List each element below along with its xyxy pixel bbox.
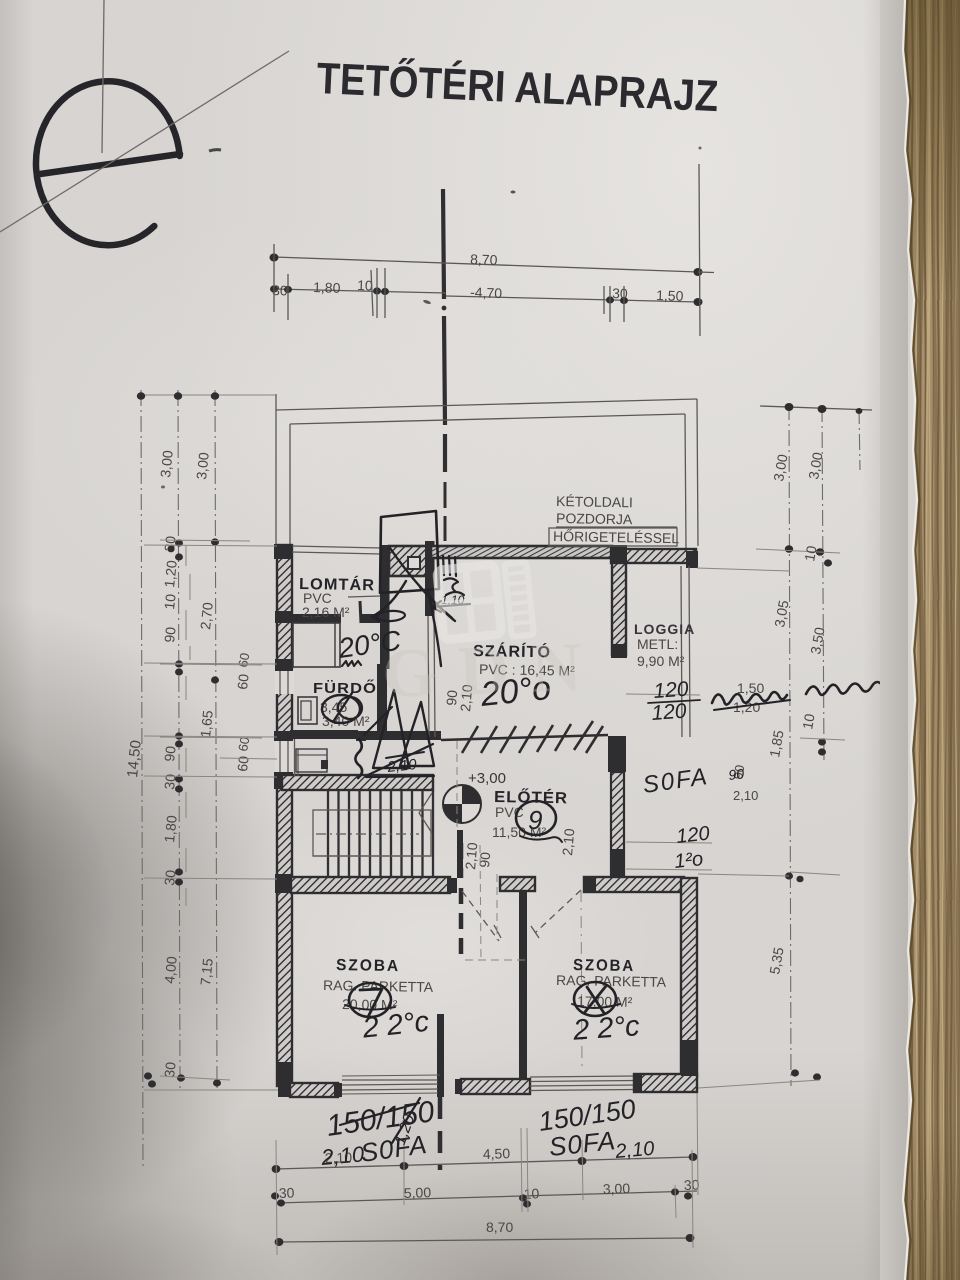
svg-text:1,65: 1,65 (197, 709, 216, 738)
svg-text:+3,00: +3,00 (468, 770, 506, 787)
svg-text:9,90 M²: 9,90 M² (637, 653, 685, 669)
svg-text:8,70: 8,70 (486, 1219, 513, 1235)
svg-text:7,15: 7,15 (197, 957, 216, 986)
svg-text:1,20: 1,20 (161, 559, 180, 588)
svg-text:8,70: 8,70 (470, 251, 498, 268)
svg-text:4,00: 4,00 (161, 955, 180, 984)
svg-text:3,00: 3,00 (603, 1180, 631, 1197)
svg-text:120: 120 (675, 823, 710, 848)
svg-text:GDN: GDN (381, 628, 605, 713)
svg-text:10: 10 (523, 1185, 540, 1202)
svg-text:2,70: 2,70 (197, 601, 216, 630)
svg-text:60: 60 (235, 652, 252, 669)
svg-text:30: 30 (612, 285, 628, 302)
svg-text:1,80: 1,80 (161, 814, 180, 843)
svg-text:9: 9 (528, 805, 542, 835)
svg-text:HŐRIGETELÉSSEL: HŐRIGETELÉSSEL (553, 528, 680, 546)
svg-text:3,00: 3,00 (193, 451, 212, 480)
svg-text:90: 90 (728, 765, 745, 783)
svg-text:1,80: 1,80 (313, 279, 341, 296)
svg-text:90: 90 (161, 745, 179, 762)
svg-text:10: 10 (799, 712, 817, 730)
svg-text:RAG. PARKETTA: RAG. PARKETTA (323, 977, 434, 995)
svg-text:4,50: 4,50 (483, 1145, 511, 1162)
svg-text:10: 10 (801, 544, 819, 562)
svg-text:METL:: METL: (637, 636, 678, 652)
svg-text:2,10: 2,10 (614, 1138, 656, 1163)
svg-text:1,50: 1,50 (737, 680, 764, 696)
svg-text:-4,70: -4,70 (470, 284, 503, 301)
svg-text:60: 60 (234, 755, 252, 772)
svg-text:SZOBA: SZOBA (336, 957, 400, 975)
svg-text:30: 30 (161, 1061, 179, 1078)
svg-text:60: 60 (234, 673, 252, 690)
svg-text:1,50: 1,50 (656, 287, 684, 304)
svg-text:2,16 M²: 2,16 M² (302, 604, 350, 620)
svg-text:POZDORJA: POZDORJA (556, 510, 633, 527)
svg-text:PVC: PVC (495, 804, 524, 820)
svg-text:90: 90 (161, 626, 179, 643)
svg-text:KÉTOLDALI: KÉTOLDALI (556, 493, 633, 510)
svg-text:3,00: 3,00 (157, 449, 176, 478)
svg-text:90: 90 (476, 851, 493, 868)
svg-text:1²o: 1²o (673, 848, 704, 873)
svg-text:10: 10 (161, 593, 179, 610)
svg-text:30: 30 (279, 1184, 295, 1201)
svg-text:5,00: 5,00 (404, 1184, 432, 1201)
svg-text:2 2°c: 2 2°c (571, 1010, 641, 1047)
svg-text:2,10: 2,10 (733, 788, 758, 803)
svg-text:LOGGIA: LOGGIA (634, 621, 695, 637)
